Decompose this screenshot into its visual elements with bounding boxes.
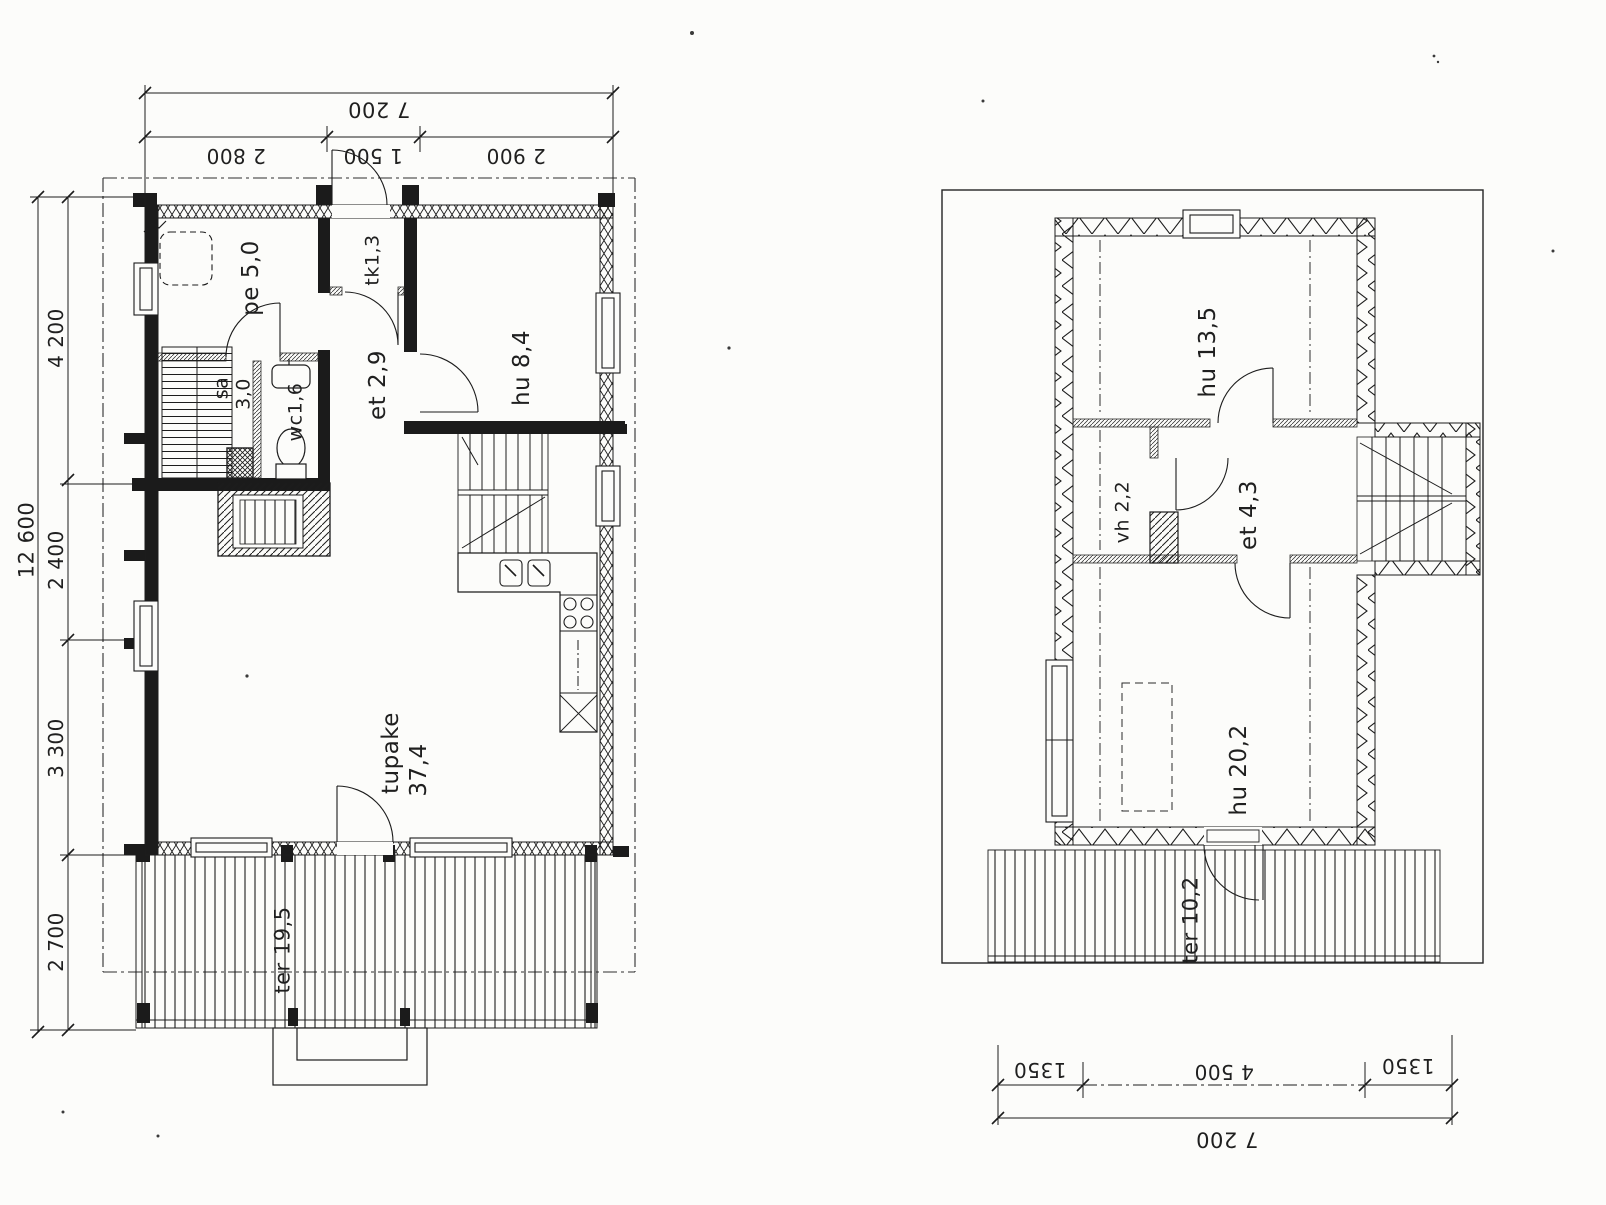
- gf-stairs: [458, 430, 548, 553]
- upper-floor-plan: hu 13,5 vh 2,2 et 4,3 hu 20,2 ter 10,2 1…: [942, 190, 1483, 1152]
- dim-bottom-total: 7 200: [1196, 1128, 1259, 1152]
- gf-terrace: [136, 845, 598, 1085]
- door-gap-entrance: [332, 205, 390, 218]
- window-symbol-east-kitchen: [596, 466, 620, 526]
- uf-dormer-wall-bottom: [1375, 561, 1480, 575]
- stair-break-line: [462, 437, 545, 548]
- room-label-wc: wc1,6: [285, 383, 307, 442]
- uf-windows: [1046, 210, 1240, 822]
- door-gap-hu: [404, 352, 417, 415]
- chimney-symbol: [1150, 512, 1178, 563]
- sink-left: [500, 560, 522, 586]
- gf-fireplace: [218, 483, 330, 556]
- room-label-sa: sa: [211, 377, 233, 400]
- room-label-tupake: tupake: [378, 712, 404, 794]
- uf-dashed-outline: [1122, 683, 1172, 811]
- uf-terrace: [988, 850, 1440, 962]
- dimension-ticks: [992, 1079, 1458, 1124]
- window-symbol-east-hu: [596, 293, 620, 373]
- uf-stairs: [1357, 437, 1466, 561]
- wall-tk-hu: [404, 218, 417, 352]
- uf-wall-east-upper: [1357, 218, 1375, 423]
- dim-left-seg2: 2 400: [44, 530, 68, 590]
- sink-right: [528, 560, 550, 586]
- uf-wall-east-lower: [1357, 575, 1375, 845]
- toilet-cistern: [276, 464, 306, 479]
- room-label-vh: vh 2,2: [1112, 481, 1134, 544]
- gf-left-dimension-chain: 12 600 4 200 2 400 3 300 2 700: [14, 191, 145, 1038]
- dim-left-seg3: 3 300: [44, 718, 68, 778]
- dim-left-seg4: 2 700: [44, 912, 68, 972]
- room-label-hu3: hu 20,2: [1226, 724, 1252, 815]
- window-symbol-south-left: [191, 838, 272, 857]
- wall-hu-south: [404, 421, 625, 434]
- ground-floor-plan: 7 200 2 800 1 500 2 900 12 600 4 200 2 4…: [14, 85, 635, 1085]
- drawing-sheet: 7 200 2 800 1 500 2 900 12 600 4 200 2 4…: [0, 0, 1606, 1205]
- shower-symbol: [160, 232, 212, 285]
- room-label-hu: hu 8,4: [509, 330, 535, 406]
- dim-bottom-seg3: 1350: [1382, 1054, 1435, 1078]
- dim-left-total: 12 600: [14, 502, 38, 578]
- room-label-et: et 2,9: [365, 350, 391, 420]
- window-symbol-uf-west: [1046, 660, 1073, 822]
- entrance-steps-inner: [297, 1028, 407, 1060]
- window-symbol-west-living: [134, 601, 158, 671]
- door-tk-et: [345, 292, 398, 345]
- room-label-tk: tk1,3: [362, 234, 384, 285]
- door-gap-pe: [318, 293, 330, 350]
- window-symbol-uf-north: [1183, 210, 1240, 238]
- window-symbol-west-pe: [134, 263, 158, 315]
- uf-dormer-wall-right: [1466, 423, 1480, 575]
- door-et-hu2: [1218, 368, 1273, 423]
- terrace-decking: [136, 855, 597, 1028]
- fireplace-hearth: [240, 500, 296, 544]
- stair-break-line: [1360, 443, 1452, 554]
- room-label-terrace2: ter 10,2: [1178, 876, 1202, 963]
- room-label-tupake-area: 37,4: [406, 743, 432, 796]
- gf-sauna: [162, 347, 253, 478]
- door-et-hu: [420, 354, 478, 412]
- door-et-hu3: [1235, 563, 1290, 618]
- room-label-et2: et 4,3: [1236, 480, 1262, 550]
- gf-kitchen: [458, 553, 597, 732]
- dim-top-total: 7 200: [348, 98, 411, 122]
- dim-top-seg2: 1 500: [343, 144, 403, 168]
- room-label-terrace: ter 19,5: [270, 906, 294, 993]
- dim-top-seg1: 2 800: [206, 144, 266, 168]
- door-vh: [1176, 458, 1228, 510]
- dim-bottom-seg1: 1350: [1014, 1058, 1067, 1082]
- dim-left-seg1: 4 200: [44, 308, 68, 368]
- uf-bottom-dimension-chain: 1350 4 500 1350 7 200: [992, 1035, 1458, 1152]
- uf-footprint-outline: [942, 190, 1483, 963]
- sauna-stove: [227, 448, 253, 478]
- room-label-hu2: hu 13,5: [1195, 306, 1221, 397]
- balcony-decking: [988, 850, 1440, 962]
- door-gap-terrace: [337, 842, 393, 855]
- room-label-sa-area: 3,0: [233, 378, 255, 410]
- uf-dormer-wall-top: [1375, 423, 1480, 437]
- gf-top-dimension-chain: 7 200 2 800 1 500 2 900: [139, 85, 619, 205]
- dim-bottom-seg2: 4 500: [1194, 1060, 1254, 1084]
- window-symbol-south-right: [410, 838, 512, 857]
- uf-doors: [1176, 368, 1290, 900]
- floor-plan-drawing: 7 200 2 800 1 500 2 900 12 600 4 200 2 4…: [0, 0, 1606, 1205]
- room-label-pe: pe 5,0: [238, 240, 264, 316]
- dim-top-seg3: 2 900: [486, 144, 546, 168]
